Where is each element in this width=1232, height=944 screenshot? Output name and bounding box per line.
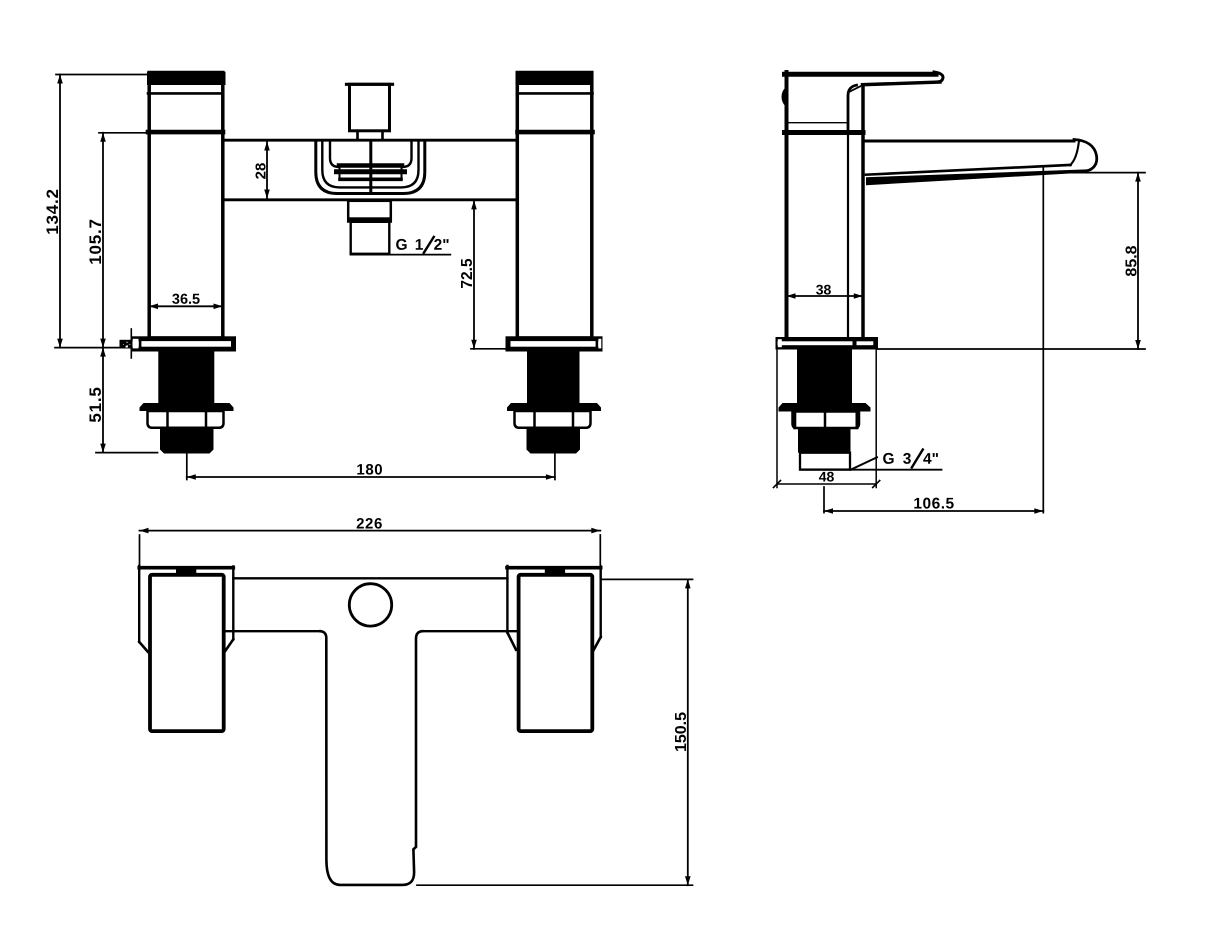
svg-text:2": 2" <box>434 237 450 254</box>
svg-text:G: G <box>395 237 407 254</box>
svg-text:134.2: 134.2 <box>43 188 62 235</box>
svg-text:28: 28 <box>252 163 269 180</box>
svg-text:226: 226 <box>356 515 383 532</box>
svg-text:G: G <box>882 451 894 468</box>
svg-text:85.8: 85.8 <box>1123 245 1140 276</box>
svg-text:180: 180 <box>356 461 383 478</box>
svg-text:150.5: 150.5 <box>673 712 690 752</box>
svg-text:38: 38 <box>816 281 832 297</box>
svg-text:105.7: 105.7 <box>86 218 105 265</box>
svg-text:1: 1 <box>415 237 424 254</box>
svg-text:4": 4" <box>923 451 939 468</box>
svg-text:72.5: 72.5 <box>459 258 476 289</box>
svg-text:48: 48 <box>819 468 835 484</box>
svg-text:51.5: 51.5 <box>86 386 105 422</box>
svg-text:3: 3 <box>903 451 912 468</box>
svg-text:36.5: 36.5 <box>172 292 200 308</box>
svg-text:106.5: 106.5 <box>913 495 954 512</box>
